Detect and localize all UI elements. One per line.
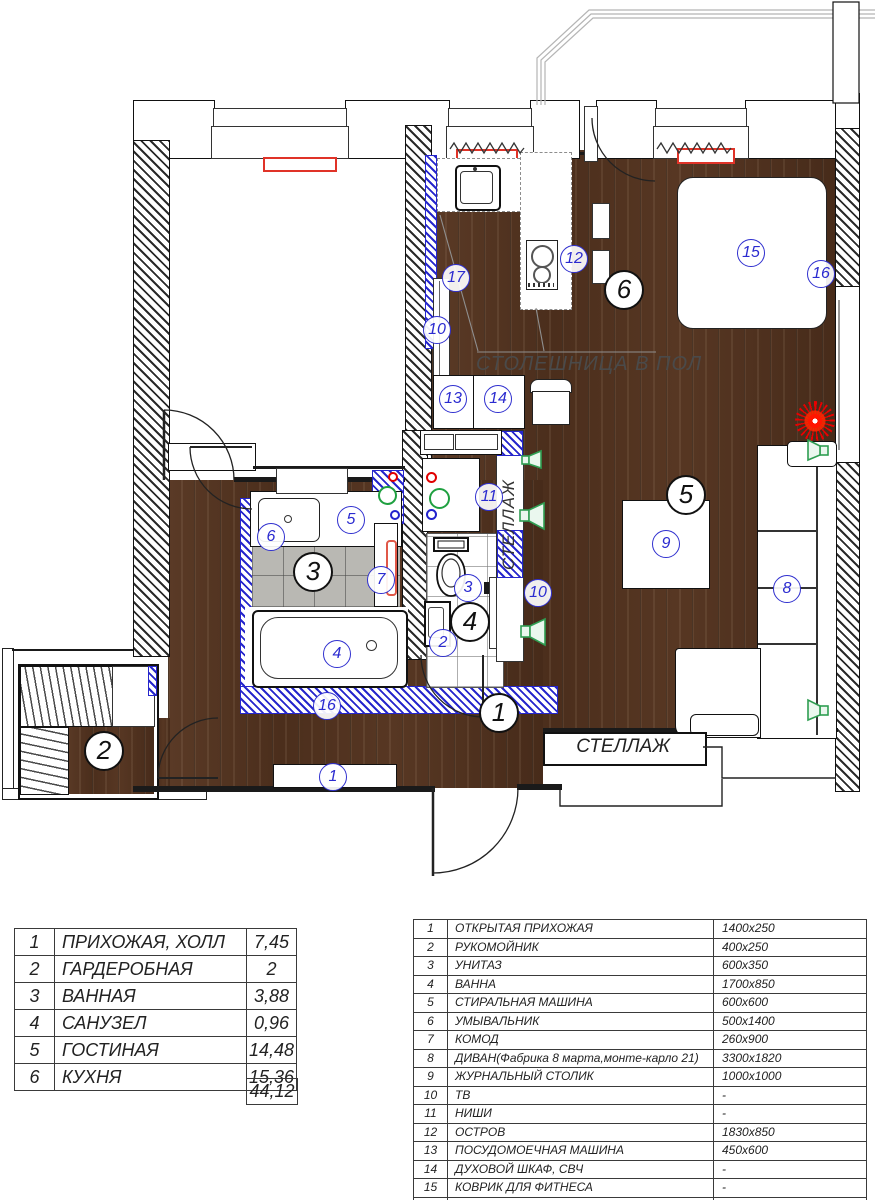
item-marker: 9 — [652, 530, 680, 558]
item-marker: 3 — [454, 574, 482, 602]
row-name: ВАННАЯ — [55, 983, 247, 1010]
table-row: 13ПОСУДОМОЕЧНАЯ МАШИНА450x600 — [414, 1142, 867, 1161]
sofa-cushion-line — [758, 530, 817, 532]
row-num: 7 — [414, 1031, 448, 1050]
row-num: 2 — [15, 956, 55, 983]
wall-pier — [345, 100, 450, 159]
row-name: ДИВАН(Фабрика 8 марта,монте-карло 21) — [448, 1049, 714, 1068]
plumbing-point-red — [388, 472, 398, 482]
table-row: 7КОМОД260x900 — [414, 1031, 867, 1050]
floor-plan: СТЕЛЛАЖ — [0, 0, 875, 910]
item-marker: 1 — [319, 763, 347, 791]
row-value: 500x1400 — [714, 1012, 867, 1031]
sofa-armrest-top — [787, 441, 837, 467]
items-table-body: 1ОТКРЫТАЯ ПРИХОЖАЯ1400x2502РУКОМОЙНИК400… — [414, 920, 867, 1200]
table-row: 2РУКОМОЙНИК400x250 — [414, 938, 867, 957]
row-value: 0,96 — [247, 1010, 297, 1037]
countertop-note: СТОЛЕШНИЦА В ПОЛ — [476, 353, 821, 375]
room-marker: 2 — [84, 731, 124, 771]
row-value: 1000x1000 — [714, 1068, 867, 1087]
radiator-icon — [263, 157, 337, 172]
row-value: 3300x1820 — [714, 1049, 867, 1068]
row-value: 1400x250 — [714, 920, 867, 939]
outer-wall-line — [12, 649, 133, 651]
row-num: 8 — [414, 1049, 448, 1068]
sofa-cushion-line — [758, 643, 817, 645]
rooms-table-body: 1ПРИХОЖАЯ, ХОЛЛ7,452ГАРДЕРОБНАЯ23ВАННАЯ3… — [15, 929, 297, 1091]
room-marker: 6 — [604, 270, 644, 310]
row-num: 6 — [15, 1064, 55, 1091]
tv-bracket-icon — [484, 582, 489, 594]
items-table: 1ОТКРЫТАЯ ПРИХОЖАЯ1400x2502РУКОМОЙНИК400… — [413, 919, 867, 1200]
table-row: 8ДИВАН(Фабрика 8 марта,монте-карло 21)33… — [414, 1049, 867, 1068]
row-name: КОВРИК ДЛЯ ФИТНЕСА — [448, 1179, 714, 1198]
row-name: КУХНЯ — [55, 1064, 247, 1091]
wall-pier — [745, 100, 839, 159]
row-num: 1 — [414, 920, 448, 939]
row-value: - — [714, 1086, 867, 1105]
row-name: САНУЗЕЛ — [55, 1010, 247, 1037]
row-name: СТИРАЛЬНАЯ МАШИНА — [448, 994, 714, 1013]
row-value: 450x600 — [714, 1142, 867, 1161]
balcony-pier — [833, 2, 859, 103]
wall-left-bearing — [133, 140, 170, 657]
table-row: 10ТВ- — [414, 1086, 867, 1105]
radiator-icon — [677, 148, 735, 164]
item-marker: 17 — [442, 264, 470, 292]
room-marker: 4 — [450, 602, 490, 642]
row-num: 14 — [414, 1160, 448, 1179]
room-marker: 1 — [479, 693, 519, 733]
row-name: НИШИ — [448, 1105, 714, 1124]
table-row: 5СТИРАЛЬНАЯ МАШИНА600x600 — [414, 994, 867, 1013]
mirror-icon — [838, 300, 840, 450]
item-marker: 10 — [524, 579, 552, 607]
bathroom-mirror-cabinet — [276, 468, 348, 494]
window-left-room — [211, 126, 349, 159]
table-row: 3УНИТАЗ600x350 — [414, 957, 867, 976]
item-marker: 2 — [429, 629, 457, 657]
shelf-vertical-label: СТЕЛЛАЖ — [499, 455, 520, 570]
table-row: 15КОВРИК ДЛЯ ФИТНЕСА- — [414, 1179, 867, 1198]
table-row: 14ДУХОВОЙ ШКАФ, СВЧ- — [414, 1160, 867, 1179]
sink-drain-icon — [284, 515, 292, 523]
table-row: 5ГОСТИНАЯ14,48 — [15, 1037, 297, 1064]
row-value: 3,88 — [247, 983, 297, 1010]
row-value: 600x350 — [714, 957, 867, 976]
row-value: 260x900 — [714, 1031, 867, 1050]
row-num: 6 — [414, 1012, 448, 1031]
wardrobe-rail-left — [20, 727, 69, 795]
table-row: 1ПРИХОЖАЯ, ХОЛЛ7,45 — [15, 929, 297, 956]
row-name: ТВ — [448, 1086, 714, 1105]
rooms-table: 1ПРИХОЖАЯ, ХОЛЛ7,452ГАРДЕРОБНАЯ23ВАННАЯ3… — [14, 928, 297, 1091]
row-name: УНИТАЗ — [448, 957, 714, 976]
item-marker: 12 — [560, 245, 588, 273]
row-value: 2 — [247, 956, 297, 983]
row-value: 14,48 — [247, 1037, 297, 1064]
wall-pier-right-top — [835, 93, 860, 132]
table-row: 3ВАННАЯ3,88 — [15, 983, 297, 1010]
item-marker: 11 — [475, 483, 503, 511]
bathtub-drain-icon — [366, 640, 377, 651]
row-num: 1 — [15, 929, 55, 956]
wall-pier — [596, 100, 657, 159]
niche-point-green — [429, 488, 450, 509]
row-num: 5 — [414, 994, 448, 1013]
cooktop-burner-icon — [531, 245, 554, 268]
sofa-back-line — [816, 447, 818, 735]
plumbing-point-blue — [390, 510, 400, 520]
wall-hall-bath — [168, 443, 256, 471]
bar-stool — [592, 203, 610, 239]
rooms-total: 44,12 — [246, 1078, 298, 1105]
niche-point-red — [426, 472, 437, 483]
floor-plan-page: СТЕЛЛАЖ — [0, 0, 875, 1200]
row-name: ПРИХОЖАЯ, ХОЛЛ — [55, 929, 247, 956]
row-num: 3 — [414, 957, 448, 976]
utility-unit-cell — [455, 434, 498, 450]
row-value: 600x600 — [714, 994, 867, 1013]
wall-right-upper — [835, 128, 860, 288]
table-row: 4ВАННА1700x850 — [414, 975, 867, 994]
item-marker: 5 — [337, 506, 365, 534]
light-burst-icon — [795, 401, 835, 441]
table-row: 9ЖУРНАЛЬНЫЙ СТОЛИК1000x1000 — [414, 1068, 867, 1087]
row-value: 1700x850 — [714, 975, 867, 994]
wall-partition-wardrobe — [148, 666, 157, 696]
kitchen-faucet-icon — [473, 167, 477, 171]
row-num: 13 — [414, 1142, 448, 1161]
item-marker: 7 — [367, 566, 395, 594]
row-value: - — [714, 1105, 867, 1124]
item-marker: 16 — [313, 692, 341, 720]
row-value: 1830x850 — [714, 1123, 867, 1142]
row-num: 11 — [414, 1105, 448, 1124]
room-marker: 3 — [293, 552, 333, 592]
appliance-body — [532, 391, 570, 425]
outer-wall-band-vertical — [2, 648, 14, 800]
row-name: ЖУРНАЛЬНЫЙ СТОЛИК — [448, 1068, 714, 1087]
item-marker: 4 — [323, 640, 351, 668]
row-name: РУКОМОЙНИК — [448, 938, 714, 957]
cooktop-knobs-icon — [528, 283, 554, 287]
row-name: УМЫВАЛЬНИК — [448, 1012, 714, 1031]
row-value: 400x250 — [714, 938, 867, 957]
table-row: 11НИШИ- — [414, 1105, 867, 1124]
row-num: 4 — [15, 1010, 55, 1037]
row-num: 5 — [15, 1037, 55, 1064]
row-name: ОСТРОВ — [448, 1123, 714, 1142]
table-row: 12ОСТРОВ1830x850 — [414, 1123, 867, 1142]
item-marker: 13 — [439, 385, 467, 413]
row-name: ПОСУДОМОЕЧНАЯ МАШИНА — [448, 1142, 714, 1161]
row-num: 2 — [414, 938, 448, 957]
wall-right-lower — [835, 462, 860, 792]
item-marker: 6 — [257, 523, 285, 551]
item-marker: 8 — [773, 575, 801, 603]
row-num: 9 — [414, 1068, 448, 1087]
wall-pier — [530, 100, 580, 159]
row-name: ОТКРЫТАЯ ПРИХОЖАЯ — [448, 920, 714, 939]
table-row: 4САНУЗЕЛ0,96 — [15, 1010, 297, 1037]
row-name: ВАННА — [448, 975, 714, 994]
utility-unit-cell — [424, 434, 454, 450]
row-name: КОМОД — [448, 1031, 714, 1050]
item-marker: 16 — [807, 260, 835, 288]
item-marker: 15 — [737, 239, 765, 267]
item-marker: 14 — [484, 385, 512, 413]
kitchen-sink-basin — [460, 171, 493, 204]
balcony-outline — [537, 10, 875, 105]
row-num: 10 — [414, 1086, 448, 1105]
row-num: 4 — [414, 975, 448, 994]
shelf-horizontal-label: СТЕЛЛАЖ — [543, 732, 703, 762]
plumbing-point-green — [378, 486, 397, 505]
balcony-door-leaf[interactable] — [584, 106, 598, 162]
row-value: 7,45 — [247, 929, 297, 956]
table-row: 6УМЫВАЛЬНИК500x1400 — [414, 1012, 867, 1031]
row-name: ГАРДЕРОБНАЯ — [55, 956, 247, 983]
row-num: 12 — [414, 1123, 448, 1142]
table-row: 2ГАРДЕРОБНАЯ2 — [15, 956, 297, 983]
row-name: ДУХОВОЙ ШКАФ, СВЧ — [448, 1160, 714, 1179]
niche-point-blue — [426, 509, 437, 520]
row-value: - — [714, 1160, 867, 1179]
window-outer-living — [655, 108, 747, 128]
room-marker: 5 — [666, 475, 706, 515]
row-num: 3 — [15, 983, 55, 1010]
row-num: 15 — [414, 1179, 448, 1198]
cooktop-burner-icon — [533, 266, 551, 284]
window-outer-kitchen — [448, 108, 532, 128]
row-value: - — [714, 1179, 867, 1198]
window-outer-left-room — [213, 108, 347, 128]
table-row: 1ОТКРЫТАЯ ПРИХОЖАЯ1400x250 — [414, 920, 867, 939]
wall-bottom-right — [517, 784, 562, 790]
item-marker: 10 — [423, 316, 451, 344]
row-name: ГОСТИНАЯ — [55, 1037, 247, 1064]
wardrobe-rail-top — [20, 666, 114, 727]
